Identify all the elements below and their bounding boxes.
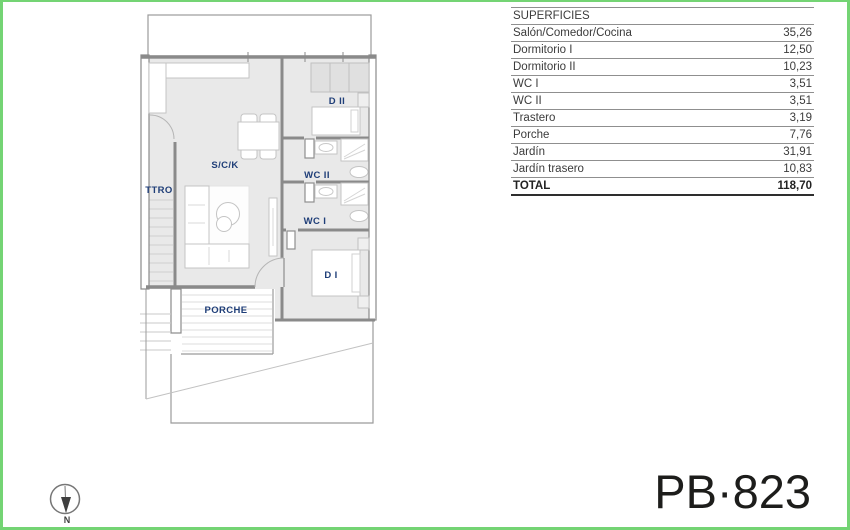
total-label: TOTAL [511, 178, 742, 196]
wc2-door-leaf [305, 139, 314, 158]
row-label: Salón/Comedor/Cocina [511, 25, 742, 42]
row-label: WC II [511, 93, 742, 110]
table-row: Trastero 3,19 [511, 110, 814, 127]
table-total-row: TOTAL 118,70 [511, 178, 814, 196]
row-label: Trastero [511, 110, 742, 127]
room-label-bedroom1: D I [324, 270, 337, 281]
floor-plan: S/C/K D II WC II WC I D I TTRO PORCHE N [3, 2, 463, 530]
north-compass-icon: N [51, 485, 80, 526]
garden-outline [171, 320, 373, 423]
row-label: Jardín [511, 144, 742, 161]
room-label-wc1: WC I [304, 216, 327, 227]
outer-wall-left [141, 55, 149, 289]
wc1-door-leaf [305, 183, 314, 202]
table-row: Dormitorio I 12,50 [511, 42, 814, 59]
plan-code: PB·823 [654, 464, 811, 519]
room-label-storage: TTRO [145, 185, 172, 196]
bed1-door-leaf [287, 231, 295, 249]
table-row: Dormitorio II 10,23 [511, 59, 814, 76]
table-row: Salón/Comedor/Cocina 35,26 [511, 25, 814, 42]
total-value: 118,70 [742, 178, 814, 196]
row-value: 3,51 [742, 93, 814, 110]
row-label: WC I [511, 76, 742, 93]
room-label-porch: PORCHE [204, 305, 247, 316]
table-row: Porche 7,76 [511, 127, 814, 144]
row-label: Dormitorio II [511, 59, 742, 76]
outer-wall-right [369, 55, 376, 320]
room-label-living-kitchen: S/C/K [211, 160, 238, 171]
row-value: 3,19 [742, 110, 814, 127]
row-label: Porche [511, 127, 742, 144]
table-header-row: SUPERFICIES [511, 8, 814, 25]
garden-steps [140, 314, 171, 350]
table-title: SUPERFICIES [511, 8, 742, 25]
table-row: WC I 3,51 [511, 76, 814, 93]
room-label-wc2: WC II [304, 170, 330, 181]
porch-decking [182, 295, 272, 351]
table-row: WC II 3,51 [511, 93, 814, 110]
superficies-table: SUPERFICIES Salón/Comedor/Cocina 35,26 D… [511, 7, 814, 196]
row-label: Dormitorio I [511, 42, 742, 59]
row-value: 3,51 [742, 76, 814, 93]
rear-garden-outline [148, 15, 371, 56]
kitchen-counter-side [149, 63, 166, 113]
table-row: Jardín trasero 10,83 [511, 161, 814, 178]
room-label-bedroom2: D II [329, 96, 345, 107]
row-value: 7,76 [742, 127, 814, 144]
row-value: 12,50 [742, 42, 814, 59]
porch-pillar-wall [171, 289, 181, 333]
compass-north-label: N [64, 515, 71, 525]
row-label: Jardín trasero [511, 161, 742, 178]
row-value: 10,83 [742, 161, 814, 178]
row-value: 31,91 [742, 144, 814, 161]
table-row: Jardín 31,91 [511, 144, 814, 161]
plan-sheet: S/C/K D II WC II WC I D I TTRO PORCHE N … [0, 0, 850, 530]
row-value: 35,26 [742, 25, 814, 42]
row-value: 10,23 [742, 59, 814, 76]
